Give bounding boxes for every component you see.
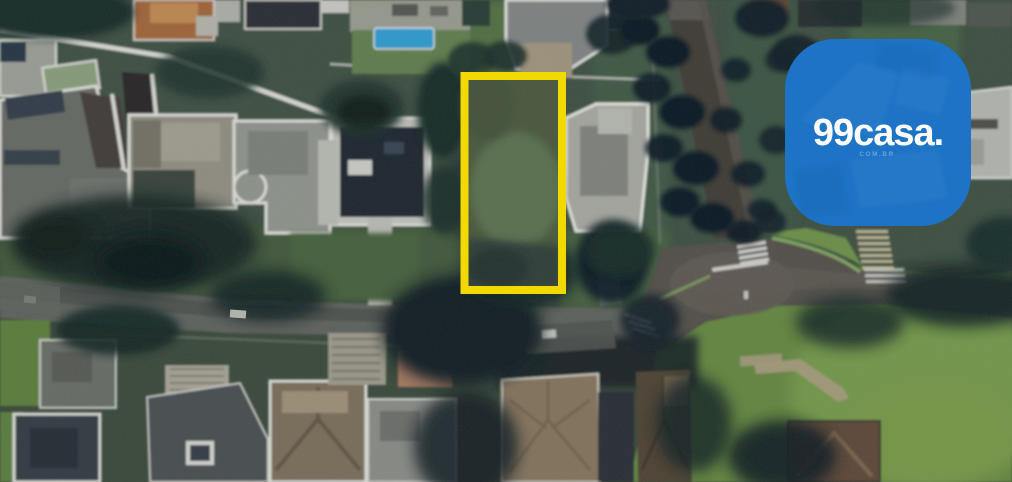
svg-text:COM.BR: COM.BR bbox=[859, 151, 894, 158]
svg-text:99casa.: 99casa. bbox=[813, 112, 943, 154]
